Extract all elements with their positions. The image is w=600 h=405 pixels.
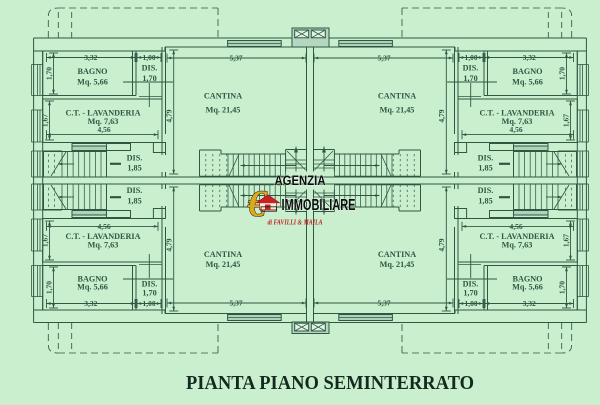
svg-text:1,70: 1,70: [463, 74, 477, 83]
svg-text:5,37: 5,37: [377, 54, 390, 63]
svg-text:1,70: 1,70: [557, 281, 566, 294]
svg-text:Mq. 21,45: Mq. 21,45: [380, 260, 415, 269]
svg-text:DIS.: DIS.: [478, 186, 494, 195]
svg-text:3,32: 3,32: [523, 299, 536, 308]
svg-text:5,37: 5,37: [229, 299, 242, 308]
svg-text:Mq. 5,66: Mq. 5,66: [512, 78, 543, 87]
svg-text:DIS.: DIS.: [478, 153, 494, 162]
svg-text:1,85: 1,85: [127, 197, 141, 206]
svg-text:BAGNO: BAGNO: [77, 67, 107, 76]
svg-text:DIS.: DIS.: [142, 280, 158, 289]
svg-text:1,70: 1,70: [142, 289, 156, 298]
svg-text:CANTINA: CANTINA: [378, 250, 416, 259]
svg-text:1,67: 1,67: [561, 234, 570, 247]
svg-text:PIANTA PIANO SEMINTERRATO: PIANTA PIANO SEMINTERRATO: [186, 372, 474, 394]
svg-text:4,79: 4,79: [437, 238, 446, 251]
svg-text:4,56: 4,56: [509, 125, 522, 134]
svg-text:1,85: 1,85: [478, 197, 492, 206]
svg-text:1,00: 1,00: [142, 53, 155, 62]
svg-text:1,70: 1,70: [142, 74, 156, 83]
svg-text:di FAVILLI & MAILA: di FAVILLI & MAILA: [268, 219, 323, 227]
svg-text:4,56: 4,56: [97, 222, 110, 231]
svg-text:5,37: 5,37: [377, 299, 390, 308]
svg-text:Mq. 7,63: Mq. 7,63: [88, 241, 119, 250]
svg-text:Mq. 21,45: Mq. 21,45: [206, 260, 241, 269]
svg-text:DIS.: DIS.: [127, 186, 143, 195]
svg-text:CANTINA: CANTINA: [378, 92, 416, 101]
svg-text:1,00: 1,00: [464, 53, 477, 62]
svg-text:Mq. 21,45: Mq. 21,45: [206, 106, 241, 115]
svg-text:Mq. 5,66: Mq. 5,66: [512, 283, 543, 292]
svg-text:DIS.: DIS.: [142, 64, 158, 73]
svg-text:4,56: 4,56: [509, 222, 522, 231]
svg-text:DIS.: DIS.: [463, 64, 479, 73]
svg-text:4,79: 4,79: [437, 109, 446, 122]
svg-text:5,37: 5,37: [229, 54, 242, 63]
svg-text:CANTINA: CANTINA: [204, 92, 242, 101]
svg-text:Mq. 21,45: Mq. 21,45: [380, 106, 415, 115]
svg-text:1,70: 1,70: [557, 67, 566, 80]
svg-text:CANTINA: CANTINA: [204, 250, 242, 259]
svg-text:1,85: 1,85: [127, 163, 141, 172]
svg-text:IMMOBILIARE: IMMOBILIARE: [282, 197, 356, 214]
svg-text:3,32: 3,32: [84, 53, 97, 62]
svg-text:BAGNO: BAGNO: [512, 67, 542, 76]
svg-text:1,67: 1,67: [40, 114, 49, 127]
svg-text:4,79: 4,79: [165, 238, 174, 251]
svg-text:4,56: 4,56: [97, 125, 110, 134]
svg-text:4,79: 4,79: [165, 109, 174, 122]
svg-text:3,32: 3,32: [523, 53, 536, 62]
svg-text:1,00: 1,00: [142, 299, 155, 308]
svg-text:3,32: 3,32: [84, 299, 97, 308]
svg-text:1,67: 1,67: [561, 114, 570, 127]
svg-text:Mq. 5,66: Mq. 5,66: [77, 283, 108, 292]
svg-text:1,70: 1,70: [463, 289, 477, 298]
svg-text:DIS.: DIS.: [463, 280, 479, 289]
svg-text:1,70: 1,70: [44, 67, 53, 80]
svg-text:Mq. 7,63: Mq. 7,63: [502, 241, 533, 250]
svg-text:AGENZIA: AGENZIA: [275, 172, 326, 188]
svg-text:DIS.: DIS.: [127, 153, 143, 162]
svg-text:1,85: 1,85: [478, 163, 492, 172]
svg-text:Mq. 5,66: Mq. 5,66: [77, 78, 108, 87]
svg-text:1,70: 1,70: [44, 281, 53, 294]
svg-text:1,67: 1,67: [40, 234, 49, 247]
svg-text:1,00: 1,00: [464, 299, 477, 308]
